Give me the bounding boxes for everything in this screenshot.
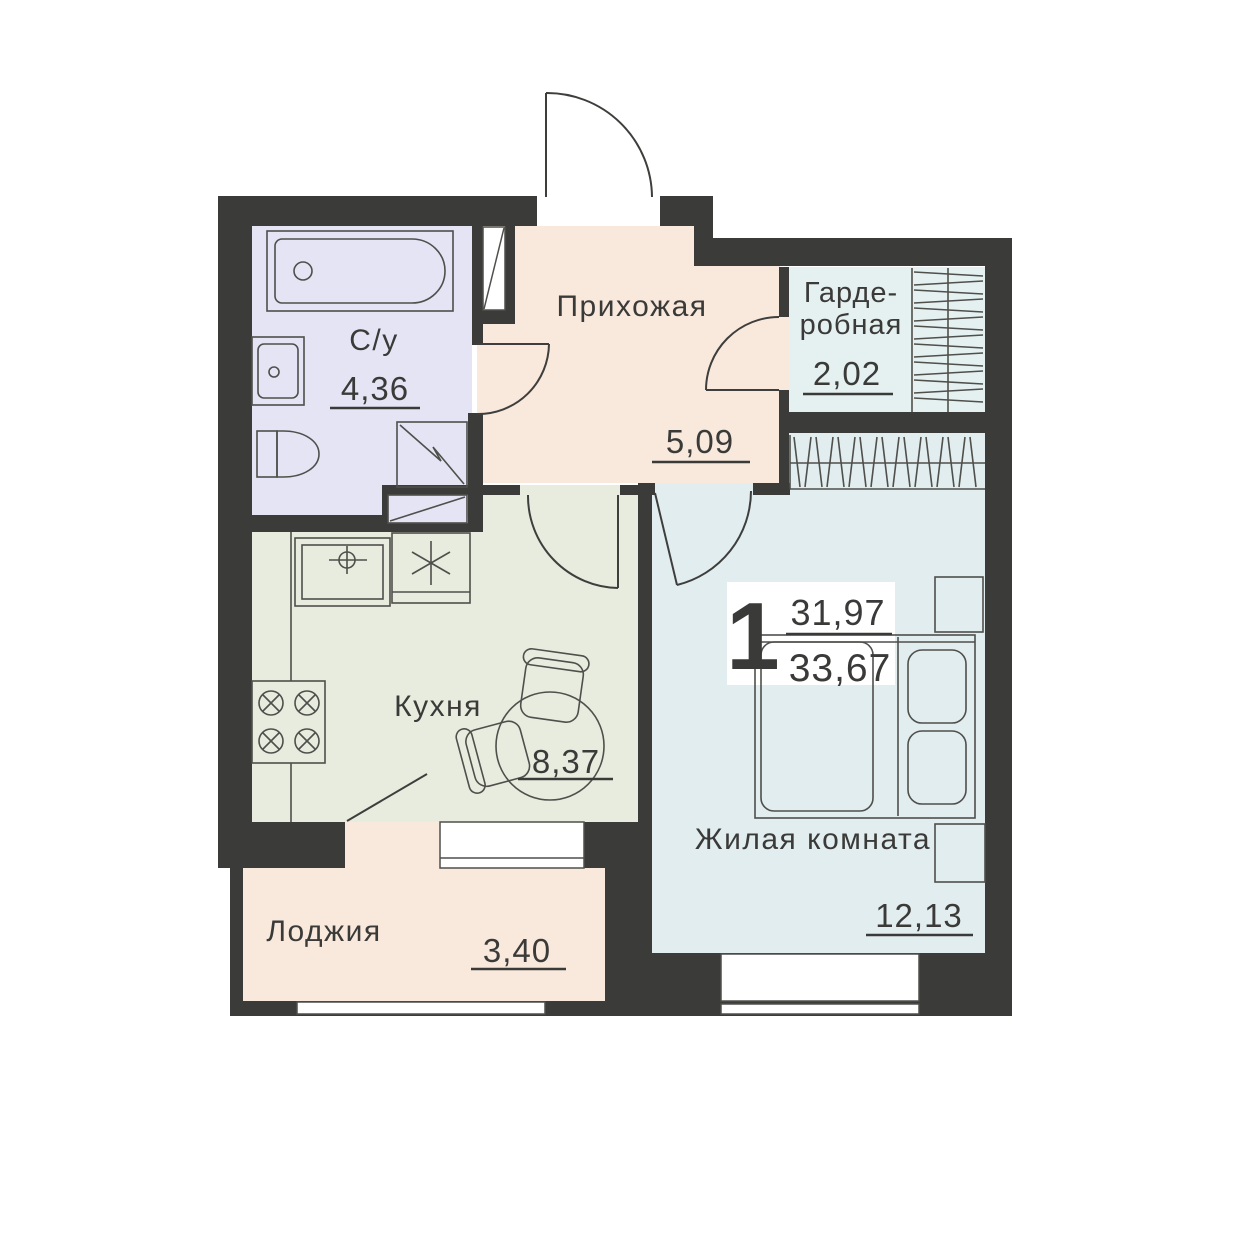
wall-segment — [584, 822, 652, 868]
floor-plan-canvas: С/у 4,36 Прихожая 5,09 Гарде- робная 2,0… — [0, 0, 1250, 1250]
kitchen-loggia-window-icon — [440, 822, 584, 868]
wall-segment — [218, 196, 252, 868]
wall-segment — [694, 238, 1012, 266]
wall-segment — [505, 226, 515, 323]
entrance-door-swing-icon — [546, 93, 652, 197]
wall-segment — [230, 868, 243, 1001]
living-room-floor — [652, 495, 985, 953]
hallway-area: 5,09 — [666, 423, 734, 460]
loggia-area: 3,40 — [483, 932, 551, 969]
wardrobe-doorway-floor — [779, 317, 789, 390]
wall-segment — [252, 515, 388, 532]
wardrobe-label-line2: робная — [800, 309, 903, 341]
wardrobe-area: 2,02 — [813, 355, 881, 392]
wall-segment — [605, 868, 652, 1016]
living-doorway-floor — [655, 483, 753, 495]
total-area: 33,67 — [789, 647, 892, 690]
wall-segment — [779, 390, 789, 483]
wall-segment — [218, 196, 537, 226]
wall-segment — [472, 324, 483, 345]
wall-segment — [985, 238, 1012, 1016]
rooms-count: 1 — [726, 583, 779, 690]
floor-plan: С/у 4,36 Прихожая 5,09 Гарде- робная 2,0… — [0, 0, 1250, 1250]
wall-segment — [382, 523, 483, 532]
wall-segment — [779, 412, 1012, 433]
living-window-icon — [721, 954, 919, 1001]
loggia-window-icon — [297, 1002, 545, 1014]
loggia-doorway-floor — [345, 822, 440, 868]
wall-segment — [638, 485, 652, 822]
wall-segment — [753, 483, 790, 495]
wardrobe-label-line1: Гарде- — [804, 277, 898, 309]
wall-segment — [472, 310, 515, 324]
wall-segment — [468, 413, 483, 532]
loggia-label: Лоджия — [266, 915, 381, 948]
living-window-sill — [721, 1004, 919, 1014]
living-area: 12,13 — [875, 897, 963, 934]
living-area-total: 31,97 — [790, 592, 885, 633]
bathroom-label: С/у — [349, 324, 399, 357]
wall-segment — [252, 822, 345, 868]
wall-segment — [779, 267, 789, 317]
kitchen-doorway-floor — [520, 485, 620, 495]
hallway-label: Прихожая — [556, 290, 707, 323]
kitchen-area: 8,37 — [532, 743, 600, 780]
living-label: Жилая комната — [695, 823, 931, 856]
kitchen-label: Кухня — [394, 690, 482, 723]
bathroom-area: 4,36 — [341, 370, 409, 407]
wall-segment — [472, 226, 483, 323]
